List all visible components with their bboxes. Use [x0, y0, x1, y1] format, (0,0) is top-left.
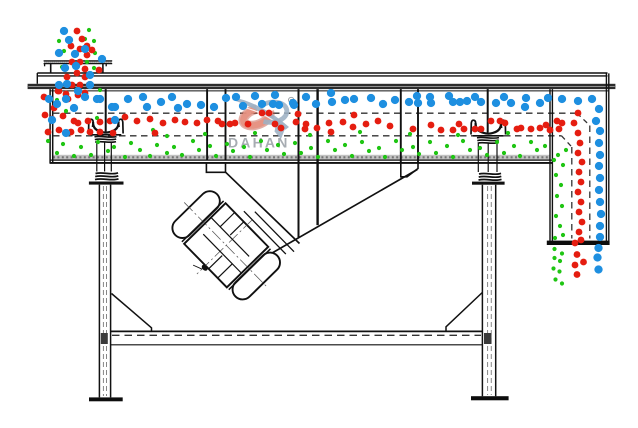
svg-text:DAHAN: DAHAN	[228, 135, 290, 151]
